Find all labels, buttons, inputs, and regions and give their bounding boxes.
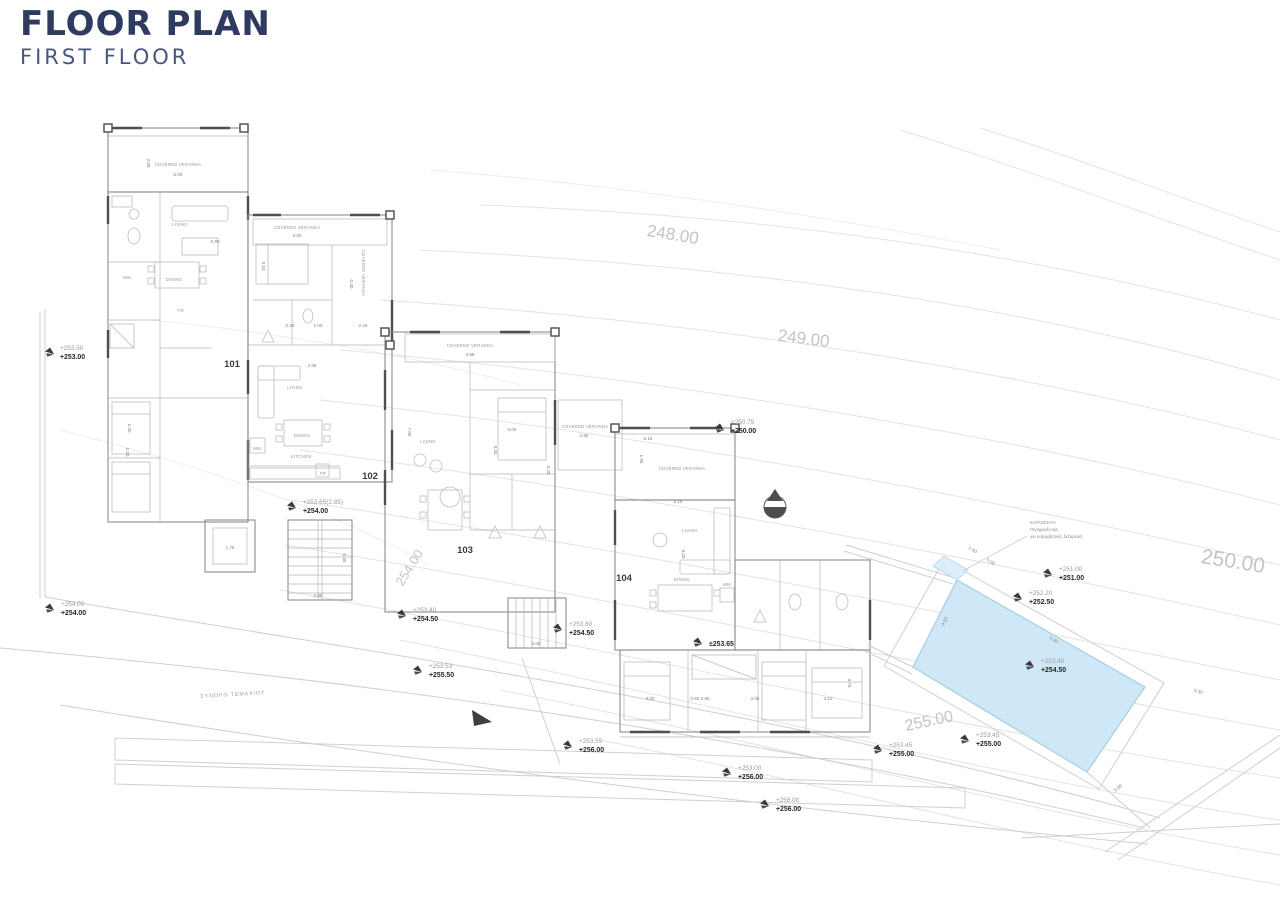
svg-text:+250.75: +250.75 <box>731 419 755 426</box>
unit-labels: 101 102 103 104 <box>224 359 633 584</box>
room-label: DINING <box>674 577 690 582</box>
svg-text:+254.00: +254.00 <box>61 610 86 617</box>
svg-text:+254.50: +254.50 <box>569 630 594 637</box>
dim-label: 6.16 <box>674 499 683 504</box>
svg-text:+255.00: +255.00 <box>976 741 1001 748</box>
pool-note-line2: Περίφραξη ΒΔ <box>1030 527 1058 532</box>
entrance-marker-icon <box>472 710 492 726</box>
dim-label: 3.00 <box>646 696 655 701</box>
svg-text:+254.50: +254.50 <box>1041 667 1066 674</box>
pool-note-line3: για κολυμβητικές δεξαμενές <box>1030 534 1083 539</box>
level-marker: +253.65(2.85) +254.00 <box>287 499 343 515</box>
room-label: LIVING <box>172 222 188 227</box>
dim-label: 2.90 <box>580 433 589 438</box>
dim-label: 3.10 <box>261 262 266 271</box>
svg-text:+256.00: +256.00 <box>579 747 604 754</box>
level-marker: ±253.65 <box>693 638 734 649</box>
svg-text:+251.00: +251.00 <box>1059 575 1084 582</box>
dim-label: 3.10 <box>824 696 833 701</box>
level-marker: +253.45 +255.00 <box>960 732 1001 748</box>
dim-label: 1.50 <box>968 545 979 554</box>
room-label: COVERED VERANDA <box>274 225 321 230</box>
dim-label: 1.40 <box>127 424 132 433</box>
dim-label: 5.90 <box>211 239 220 244</box>
dim-label: 3.20 <box>493 446 498 455</box>
level-marker: +253.50 +253.00 <box>45 345 85 361</box>
svg-text:+253.40: +253.40 <box>1041 658 1065 665</box>
dim-label: 3.25 <box>546 466 551 475</box>
room-label: COVERED VERANDA <box>361 250 366 297</box>
svg-text:+250.00: +250.00 <box>731 428 756 435</box>
unit-label-101: 101 <box>224 359 241 370</box>
svg-text:+255.00: +255.00 <box>889 751 914 758</box>
floor-plan-drawing: 248.00 249.00 250.00 254.00 255.00 ΣΥΝΟΡ… <box>0 0 1280 905</box>
room-label: COVERED VERANDA <box>155 162 202 167</box>
svg-text:+253.65(2.85): +253.65(2.85) <box>303 499 343 506</box>
room-label: LIVING <box>287 385 303 390</box>
svg-text:+254.00: +254.00 <box>303 508 328 515</box>
contour-label-255: 255.00 <box>903 708 955 735</box>
level-marker: +253.60 +254.50 <box>553 621 594 637</box>
svg-text:+252.20: +252.20 <box>1029 590 1053 597</box>
level-markers: +253.50 +253.00 +250.75 +250.00 +253.65(… <box>45 345 1084 813</box>
pool-note-leader <box>963 536 1027 571</box>
svg-text:+253.53: +253.53 <box>429 663 453 670</box>
room-label: DINING <box>294 433 310 438</box>
unit-label-104: 104 <box>616 573 633 584</box>
swimming-pool: ΚΑΤΑΣΚΕΥΗ Περίφραξη ΒΔ για κολυμβητικές … <box>884 520 1164 789</box>
level-marker: +252.20 +252.50 <box>1013 590 1054 606</box>
boundary-label: ΣΥΝΟΡΟ ΤΕΜΑΧΙΟΥ <box>200 690 265 699</box>
dim-label: 5.00 <box>1113 783 1123 793</box>
dim-label: 7.00 <box>407 428 412 437</box>
svg-text:+256.00: +256.00 <box>776 797 800 804</box>
dim-label: 3.05 <box>508 427 517 432</box>
unit-label-103: 103 <box>457 545 473 556</box>
svg-text:±253.65: ±253.65 <box>709 641 734 648</box>
dim-label: 5.45 <box>342 554 347 563</box>
dim-label: 3.06 <box>751 696 760 701</box>
level-marker: +254.00 +254.00 <box>45 601 86 617</box>
room-labels: COVERED VERANDA COVERED VERANDA COVERED … <box>123 162 731 587</box>
dim-label: 3.70 <box>847 679 852 688</box>
room-label: FR <box>320 471 326 476</box>
dim-label: 2.85 <box>308 363 317 368</box>
contour-label-250: 250.00 <box>1199 545 1266 578</box>
dim-label: 5.08 <box>532 641 541 646</box>
svg-text:+253.45: +253.45 <box>889 742 913 749</box>
contour-label-248: 248.00 <box>646 221 700 248</box>
dim-label: 1.00 <box>314 323 323 328</box>
dim-label: 6.16 <box>644 436 653 441</box>
dim-label: 9.30 <box>1193 688 1203 695</box>
contour-label-249: 249.00 <box>777 326 831 351</box>
room-label: FR <box>178 308 184 313</box>
svg-text:+256.00: +256.00 <box>776 806 801 813</box>
svg-text:+253.00: +253.00 <box>738 765 762 772</box>
level-marker: +251.00 +251.00 <box>1043 566 1084 582</box>
svg-text:+253.55: +253.55 <box>579 738 603 745</box>
dim-label: 1.20 <box>125 448 130 457</box>
room-label: WM <box>723 582 731 587</box>
room-label: COVERED VERANDA <box>447 343 494 348</box>
dim-label: 3.56 <box>466 352 475 357</box>
dim-label: 1.75 <box>226 545 235 550</box>
pool-note-line1: ΚΑΤΑΣΚΕΥΗ <box>1030 520 1056 525</box>
svg-text:+253.50: +253.50 <box>60 345 84 352</box>
room-label: KITCHEN <box>291 454 311 459</box>
unit-102-block <box>248 211 394 482</box>
dim-label: 3.50 <box>293 233 302 238</box>
unit-label-102: 102 <box>362 471 378 482</box>
dim-label: 6.20 <box>681 550 686 559</box>
dim-label: 0.60 2.80 <box>690 696 710 701</box>
svg-text:+251.00: +251.00 <box>1059 566 1083 573</box>
room-label: COVERED VERANDA <box>562 424 609 429</box>
svg-text:+253.00: +253.00 <box>60 354 85 361</box>
room-label: DINING <box>166 277 182 282</box>
svg-text:+253.40: +253.40 <box>413 607 437 614</box>
dim-label: 5.00 <box>174 172 183 177</box>
dim-label: 0.40 <box>349 280 354 289</box>
plot-boundary: ΣΥΝΟΡΟ ΤΕΜΑΧΙΟΥ <box>0 309 1280 860</box>
dim-label: 2.43 <box>286 323 295 328</box>
room-label: LIVING <box>682 528 698 533</box>
dim-label: 2.05 <box>146 159 151 168</box>
floor-plan-page: FLOOR PLAN FIRST FLOOR <box>0 0 1280 905</box>
dim-label: 2.86 <box>314 593 323 598</box>
svg-text:+256.00: +256.00 <box>738 774 763 781</box>
dim-label: 2.16 <box>359 323 368 328</box>
svg-text:+255.50: +255.50 <box>429 672 454 679</box>
room-label: WM <box>123 275 131 280</box>
room-label: WM <box>253 446 261 451</box>
svg-text:+253.45: +253.45 <box>976 732 1000 739</box>
pool-steps <box>933 556 968 580</box>
svg-text:+252.50: +252.50 <box>1029 599 1054 606</box>
room-label: COVERED VERANDA <box>659 466 706 471</box>
north-arrow-icon <box>764 489 786 518</box>
contour-labels: 248.00 249.00 250.00 254.00 255.00 <box>392 221 1266 735</box>
svg-text:+254.50: +254.50 <box>413 616 438 623</box>
svg-text:+253.60: +253.60 <box>569 621 593 628</box>
pool-water <box>913 580 1145 772</box>
level-marker: +253.53 +255.50 <box>413 663 454 679</box>
room-label: LIVING <box>420 439 436 444</box>
svg-text:+254.00: +254.00 <box>61 601 85 608</box>
dim-label: 1.85 <box>639 455 644 464</box>
